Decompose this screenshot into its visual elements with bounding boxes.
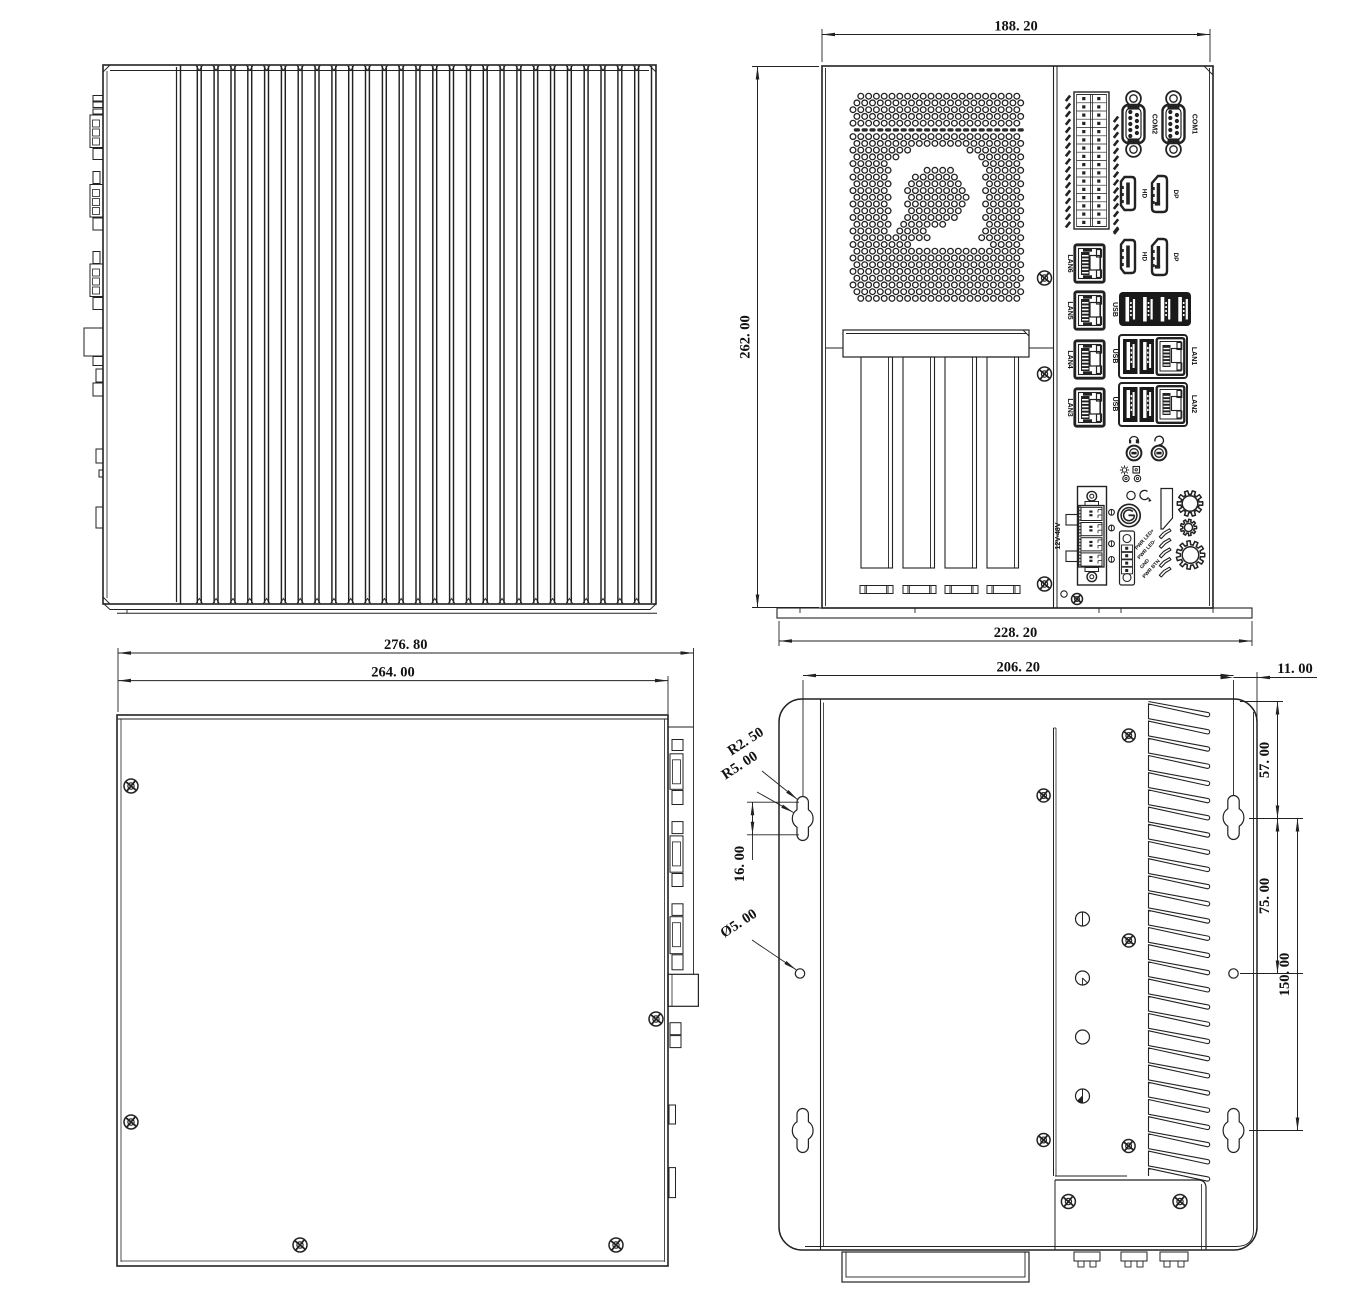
svg-text:16. 00: 16. 00: [732, 846, 748, 882]
svg-text:HD: HD: [1141, 252, 1148, 262]
svg-text:75. 00: 75. 00: [1257, 878, 1273, 914]
svg-text:LAN4: LAN4: [1066, 350, 1073, 368]
svg-text:12V-48V: 12V-48V: [1055, 522, 1062, 549]
svg-text:11. 00: 11. 00: [1277, 661, 1312, 677]
svg-text:262. 00: 262. 00: [738, 315, 754, 359]
svg-text:57. 00: 57. 00: [1257, 742, 1273, 778]
svg-text:HD: HD: [1141, 189, 1148, 199]
svg-text:DP: DP: [1172, 189, 1179, 199]
svg-text:150. 00: 150. 00: [1277, 953, 1293, 997]
svg-text:USB: USB: [1111, 349, 1118, 364]
svg-text:276. 80: 276. 80: [384, 637, 428, 653]
svg-text:188. 20: 188. 20: [994, 19, 1038, 35]
svg-text:LAN5: LAN5: [1066, 301, 1073, 319]
svg-text:264. 00: 264. 00: [371, 665, 415, 681]
svg-text:LAN2: LAN2: [1190, 395, 1197, 413]
svg-text:LAN1: LAN1: [1190, 347, 1197, 365]
svg-text:DP: DP: [1172, 252, 1179, 262]
svg-text:USB: USB: [1111, 397, 1118, 412]
svg-text:LAN6: LAN6: [1066, 254, 1073, 272]
svg-text:LAN3: LAN3: [1066, 398, 1073, 416]
svg-text:206. 20: 206. 20: [996, 660, 1040, 676]
svg-text:USB: USB: [1111, 302, 1118, 317]
svg-text:COM2: COM2: [1151, 114, 1158, 134]
svg-text:COM1: COM1: [1191, 114, 1198, 134]
svg-text:228. 20: 228. 20: [994, 625, 1038, 641]
